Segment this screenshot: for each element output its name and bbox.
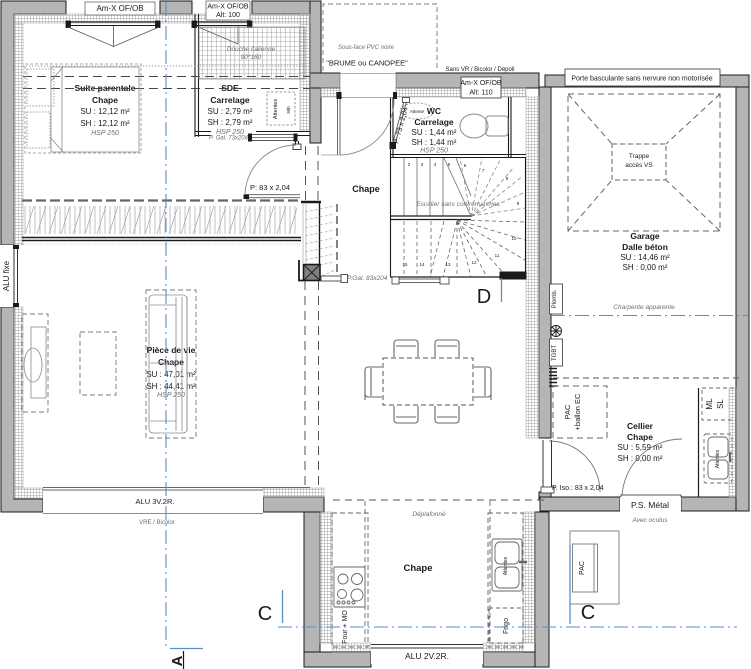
svg-text:SU : 1,44 m²: SU : 1,44 m² [412, 128, 457, 137]
svg-text:SH : 44,41 m²: SH : 44,41 m² [146, 382, 196, 391]
svg-text:SH : 0,00 m²: SH : 0,00 m² [618, 454, 663, 463]
svg-text:Escalier sans contremarches: Escalier sans contremarches [416, 201, 500, 208]
svg-text:SU : 2,79 m²: SU : 2,79 m² [208, 107, 253, 116]
svg-text:Attente: Attente [410, 109, 425, 114]
svg-text:Carrelage: Carrelage [210, 95, 249, 105]
svg-text:SU : 14,46 m²: SU : 14,46 m² [620, 253, 670, 262]
svg-text:Avec oculus: Avec oculus [632, 517, 669, 524]
svg-text:Trappe: Trappe [629, 153, 650, 160]
svg-text:12: 12 [471, 260, 477, 265]
svg-text:90*160: 90*160 [241, 54, 262, 61]
svg-text:+ballon EC: +ballon EC [573, 393, 582, 430]
svg-text:TGBT: TGBT [552, 345, 558, 361]
svg-text:P: 83 x 2,04: P: 83 x 2,04 [250, 183, 290, 192]
svg-text:PAC: PAC [563, 404, 572, 419]
svg-text:SU : 12,12 m²: SU : 12,12 m² [80, 107, 130, 116]
svg-text:accès VS: accès VS [625, 162, 653, 169]
svg-text:Cellier: Cellier [627, 421, 654, 431]
svg-text:Charpente apparente: Charpente apparente [613, 304, 675, 311]
svg-text:11: 11 [495, 253, 500, 258]
svg-text:P.Gal. 83x204: P.Gal. 83x204 [347, 275, 388, 282]
svg-text:Chape: Chape [158, 357, 184, 367]
svg-text:14: 14 [419, 262, 425, 267]
svg-text:HSP 250: HSP 250 [420, 148, 448, 155]
svg-text:90b: 90b [286, 106, 291, 114]
svg-text:Alt: 100: Alt: 100 [216, 12, 240, 19]
svg-text:ALU 2V.2R.: ALU 2V.2R. [405, 651, 449, 661]
svg-text:ALU fixe: ALU fixe [2, 260, 11, 291]
svg-text:Plomb.: Plomb. [552, 289, 558, 308]
svg-text:Chape: Chape [92, 95, 118, 105]
svg-text:SH : 2,79 m²: SH : 2,79 m² [208, 118, 253, 127]
svg-text:Chape: Chape [403, 563, 432, 574]
svg-text:D: D [477, 286, 491, 308]
svg-text:P. Iso.: 83 x 2,04: P. Iso.: 83 x 2,04 [552, 485, 604, 492]
svg-text:SH : 1,44 m²: SH : 1,44 m² [412, 138, 457, 147]
svg-text:Sous-face PVC noire: Sous-face PVC noire [338, 45, 395, 51]
svg-text:Attentes: Attentes [503, 556, 509, 575]
svg-text:Chape: Chape [627, 432, 653, 442]
svg-text:Déplafonné: Déplafonné [412, 511, 446, 518]
svg-text:PAC: PAC [579, 561, 586, 575]
svg-text:P.S. Métal: P.S. Métal [631, 500, 669, 510]
svg-text:Frigo: Frigo [503, 618, 510, 634]
svg-text:Chape: Chape [352, 184, 380, 194]
svg-text:SU : 47,01 m²: SU : 47,01 m² [146, 370, 196, 379]
svg-text:Attentes: Attentes [715, 449, 721, 468]
svg-text:C: C [581, 602, 595, 624]
svg-text:Alt: 110: Alt: 110 [469, 90, 492, 97]
svg-text:Porte basculante sans nervure: Porte basculante sans nervure non motori… [571, 76, 712, 83]
svg-text:HSP 250: HSP 250 [91, 130, 119, 137]
svg-text:Attentes: Attentes [273, 99, 279, 119]
svg-text:SL: SL [716, 399, 725, 409]
svg-text:C: C [258, 603, 272, 625]
svg-text:Am-X OF/OB: Am-X OF/OB [460, 80, 502, 87]
svg-text:Sans VR / Bicolor / Dépoli: Sans VR / Bicolor / Dépoli [445, 67, 514, 73]
svg-text:13: 13 [445, 262, 451, 267]
svg-text:P. Gal. 73x204: P. Gal. 73x204 [209, 136, 249, 142]
svg-text:SH : 0,00 m²: SH : 0,00 m² [623, 263, 668, 272]
svg-text:Dalle béton: Dalle béton [622, 242, 668, 252]
svg-text:ML: ML [705, 398, 714, 410]
svg-text:VRE / Bicolor: VRE / Bicolor [139, 520, 175, 526]
svg-text:Garage: Garage [630, 231, 660, 241]
svg-text:10: 10 [511, 236, 517, 241]
svg-text:Pièce de vie: Pièce de vie [147, 345, 196, 355]
svg-text:Am-X OF/OB: Am-X OF/OB [207, 4, 249, 11]
svg-text:SH : 12,12 m²: SH : 12,12 m² [80, 119, 130, 128]
svg-text:Douche italienne: Douche italienne [227, 46, 276, 53]
svg-text:15: 15 [402, 262, 408, 267]
svg-text:"BRUME ou CANOPEE": "BRUME ou CANOPEE" [326, 59, 408, 68]
svg-text:Am-X OF/OB: Am-X OF/OB [96, 4, 143, 13]
svg-text:HSP 250: HSP 250 [157, 392, 185, 399]
svg-text:ALU 3V.2R.: ALU 3V.2R. [136, 497, 175, 506]
